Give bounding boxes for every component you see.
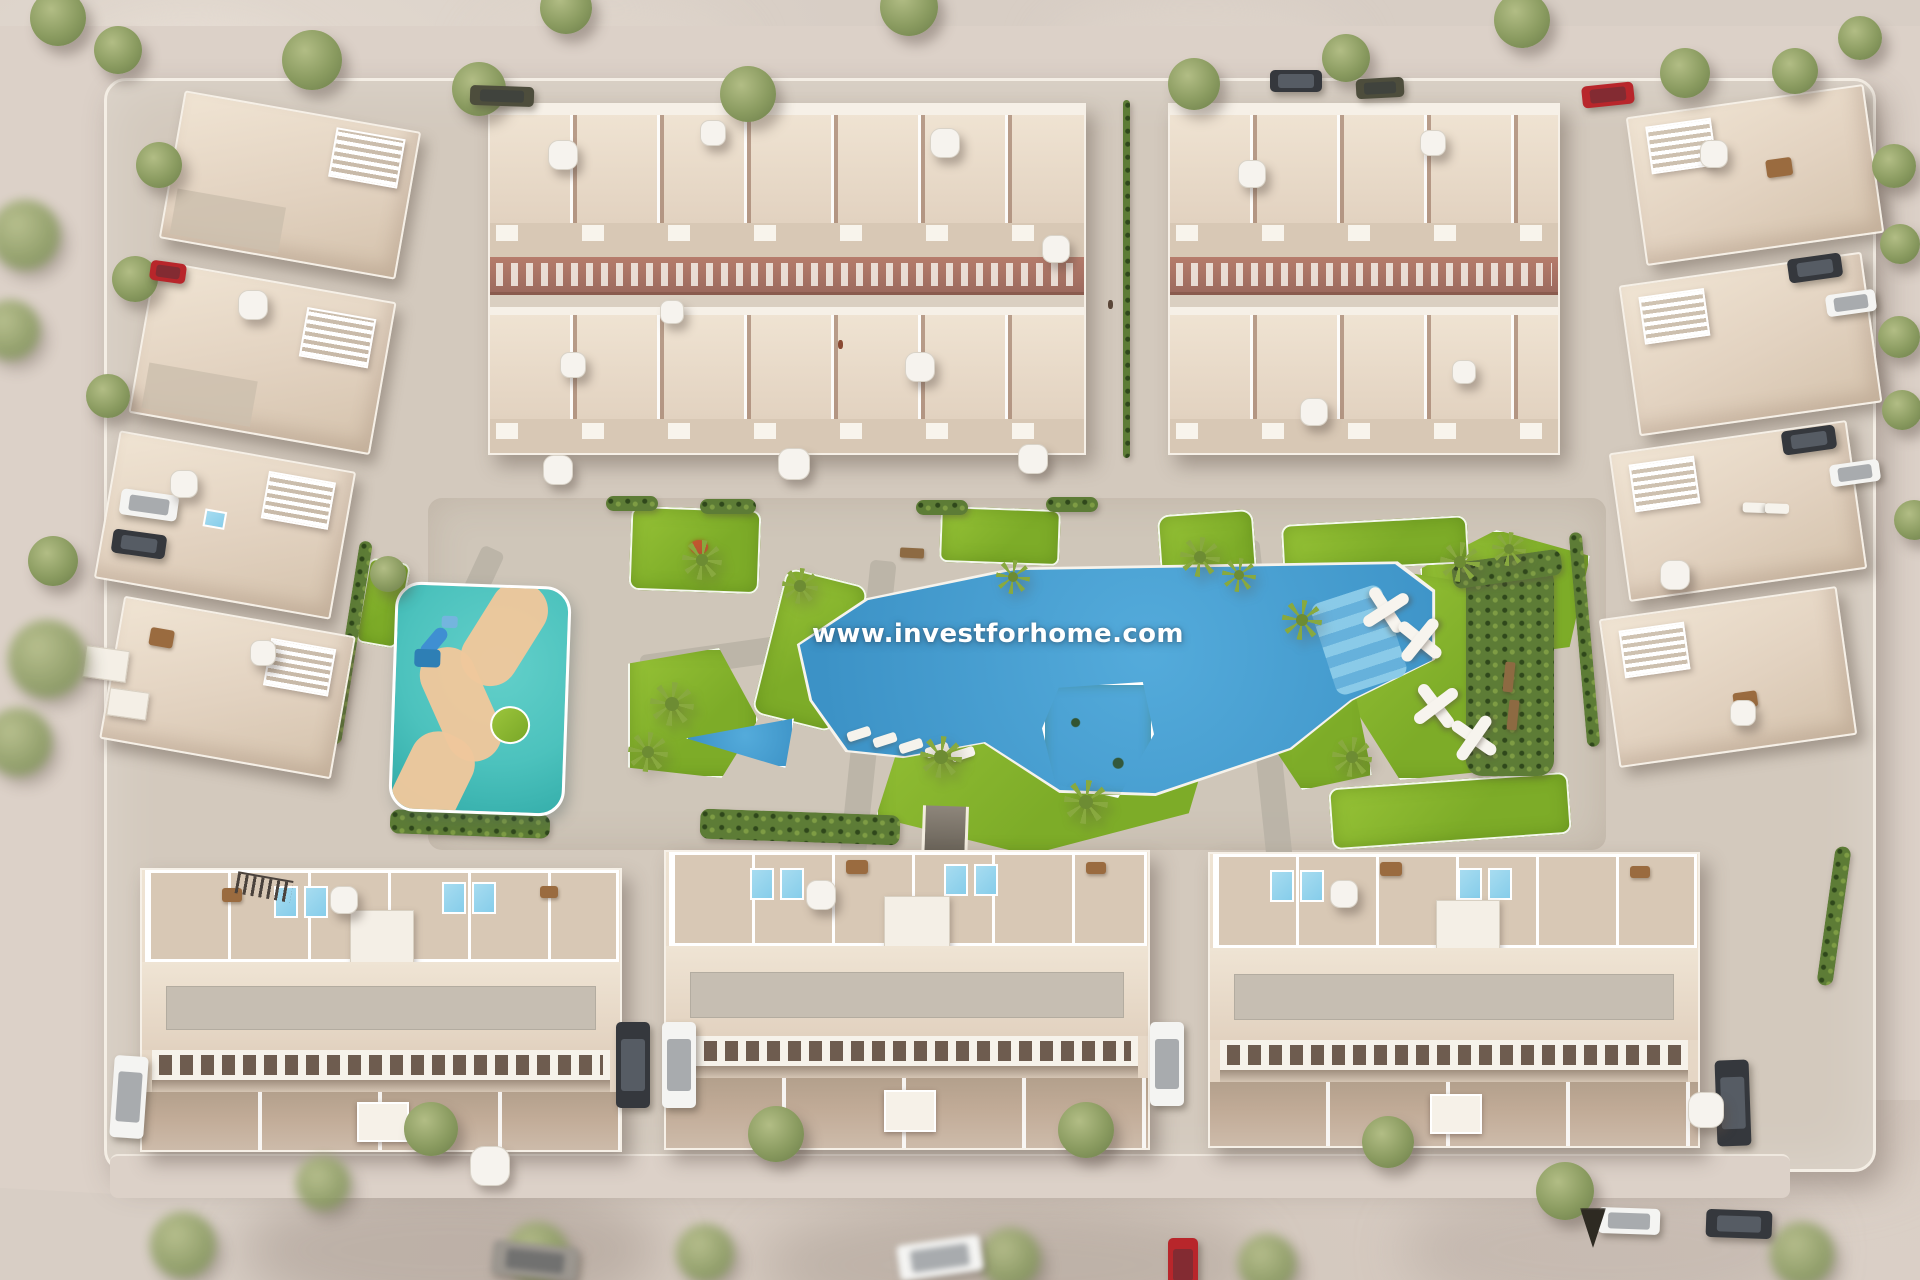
palm-tree xyxy=(1222,558,1256,592)
plaza-bench xyxy=(900,547,924,558)
tree xyxy=(1772,48,1818,94)
terrace-furniture xyxy=(148,627,175,649)
parasol xyxy=(1700,140,1728,168)
pergola-louver-roof xyxy=(328,127,406,188)
tree xyxy=(404,1102,458,1156)
facade-shadow xyxy=(676,1066,1138,1078)
tree xyxy=(1878,316,1920,358)
tree xyxy=(980,1228,1040,1280)
parasol xyxy=(1300,398,1328,426)
tree xyxy=(1882,390,1920,430)
parasol xyxy=(170,470,198,498)
tree xyxy=(150,1212,216,1278)
facade-windows xyxy=(496,263,1078,286)
parasol xyxy=(548,140,578,170)
terrace-furniture xyxy=(1086,862,1106,874)
planter-hedge xyxy=(1046,497,1098,512)
stair-bulkheads xyxy=(496,423,1078,439)
street-facade xyxy=(490,257,1084,295)
garden-pergola xyxy=(106,687,150,720)
terrace-furniture xyxy=(1765,157,1793,178)
parasol xyxy=(905,352,935,382)
tree xyxy=(282,30,342,90)
park-x-bench xyxy=(1389,611,1450,669)
stair-bulkheads xyxy=(1176,423,1552,439)
tree xyxy=(1838,16,1882,60)
tree xyxy=(1880,224,1920,264)
parapet-wall xyxy=(490,307,1084,315)
window-band xyxy=(1220,1040,1688,1070)
terrace-furniture xyxy=(1380,862,1402,876)
rooftop-plunge-pool xyxy=(1458,868,1482,900)
parasol xyxy=(700,120,726,146)
alley-hedge xyxy=(1123,100,1130,458)
tree xyxy=(86,374,130,418)
garden-pergola xyxy=(82,645,130,683)
palm-tree xyxy=(628,732,668,772)
playground-structure xyxy=(441,616,457,629)
tree xyxy=(8,620,86,698)
townhouse-roof-row xyxy=(1170,115,1558,223)
facade-shadow xyxy=(152,1080,610,1092)
parked-car-olive xyxy=(470,85,535,107)
tree xyxy=(676,1224,734,1280)
terrace-furniture xyxy=(1630,866,1650,878)
roof-inner-band xyxy=(690,972,1124,1018)
facade-windows xyxy=(1176,263,1552,286)
terraced-building-south-west xyxy=(140,868,622,1152)
tree xyxy=(94,26,142,74)
palm-tree xyxy=(1332,737,1372,777)
parked-car-dark xyxy=(1270,70,1322,92)
rooftop-plunge-pool xyxy=(1300,870,1324,902)
townhouse-roof-row xyxy=(490,115,1084,223)
parasol xyxy=(806,880,836,910)
tree xyxy=(1362,1116,1414,1168)
windows xyxy=(159,1055,603,1075)
playground-structure xyxy=(414,649,441,668)
entrance-gate xyxy=(884,1090,936,1132)
walkway xyxy=(1170,295,1558,307)
parapet-wall xyxy=(1170,105,1558,115)
tree xyxy=(296,1156,350,1210)
kids-splash-pool xyxy=(388,581,572,817)
walkway xyxy=(490,295,1084,307)
rooftop-plunge-pool xyxy=(1488,868,1512,900)
parasol xyxy=(543,455,573,485)
parked-car-red xyxy=(1168,1238,1198,1280)
person xyxy=(838,340,843,349)
tree xyxy=(748,1106,804,1162)
pergola-louver-roof xyxy=(299,307,377,368)
parasol xyxy=(1688,1092,1724,1128)
parapet-wall xyxy=(490,105,1084,115)
palm-tree xyxy=(1064,780,1108,824)
parked-car-white xyxy=(1598,1207,1661,1235)
parked-car-dark xyxy=(616,1022,650,1108)
entrance-gate xyxy=(357,1102,409,1142)
parasol xyxy=(1452,360,1476,384)
roof-inner-band xyxy=(1234,974,1674,1020)
rooftop-plunge-pool xyxy=(304,886,328,918)
parasol xyxy=(1018,444,1048,474)
parked-car-white xyxy=(1150,1022,1184,1106)
windows xyxy=(683,1041,1131,1061)
sun-lounger xyxy=(1765,503,1789,514)
tree xyxy=(1058,1102,1114,1158)
palm-tree xyxy=(1440,542,1480,582)
tree xyxy=(1168,58,1220,110)
parasol xyxy=(1730,700,1756,726)
palm-tree xyxy=(996,560,1030,594)
rooftop-plunge-pool xyxy=(944,864,968,896)
window-band xyxy=(676,1036,1138,1066)
parked-car-dark xyxy=(1706,1209,1773,1239)
townhouse-roof-row xyxy=(1170,315,1558,419)
facade-shadow xyxy=(1220,1070,1688,1082)
pergola-louver-roof xyxy=(1629,456,1701,513)
entrance-gate xyxy=(1430,1094,1482,1134)
palm-tree xyxy=(920,736,962,778)
windows xyxy=(1227,1045,1681,1065)
tree xyxy=(370,556,406,592)
planter-hedge xyxy=(700,499,756,514)
splash-island xyxy=(489,705,530,744)
parasol xyxy=(470,1146,510,1186)
tree xyxy=(1660,48,1710,98)
parasol xyxy=(1420,130,1446,156)
parasol xyxy=(250,640,276,666)
parasol xyxy=(1330,880,1358,908)
rooftop-plunge-pool xyxy=(442,882,466,914)
palm-tree xyxy=(650,682,694,726)
villa-terrace xyxy=(141,362,257,426)
palm-tree xyxy=(782,568,818,604)
palm-tree xyxy=(1180,537,1220,577)
rooftop-plunge-pool xyxy=(1270,870,1294,902)
townhouse-block-north-east xyxy=(1168,103,1560,455)
tree xyxy=(720,66,776,122)
palm-tree xyxy=(1492,532,1526,566)
terrace-furniture xyxy=(846,860,868,874)
palm-tree xyxy=(682,540,722,580)
rooftop-skylight xyxy=(202,508,227,530)
tree xyxy=(1770,1222,1834,1280)
aerial-development-render: www.investforhome.com xyxy=(0,0,1920,1280)
terrace-furniture xyxy=(540,886,558,898)
street-facade xyxy=(1170,257,1558,295)
parked-car-white xyxy=(662,1022,696,1108)
parasol xyxy=(660,300,684,324)
planter-hedge xyxy=(606,496,658,511)
rooftop-plunge-pool xyxy=(974,864,998,896)
parasol xyxy=(330,886,358,914)
parasol xyxy=(1660,560,1690,590)
tree xyxy=(136,142,182,188)
watermark: www.investforhome.com xyxy=(812,620,1107,650)
rooftop-plunge-pool xyxy=(780,868,804,900)
park-x-bench xyxy=(1442,708,1506,769)
roof-inner-band xyxy=(166,986,596,1030)
parasol xyxy=(238,290,268,320)
pergola-louver-roof xyxy=(1638,288,1710,345)
sun-lounger xyxy=(1743,502,1767,513)
parked-car-olive xyxy=(1356,77,1405,99)
pergola-louver-roof xyxy=(1619,622,1691,679)
planter-hedge xyxy=(916,500,968,515)
tree xyxy=(28,536,78,586)
stair-bulkhead xyxy=(350,910,414,968)
parasol xyxy=(1042,235,1070,263)
tree xyxy=(1872,144,1916,188)
tree xyxy=(1238,1234,1296,1280)
terraced-building-south-east xyxy=(1208,852,1700,1148)
rooftop-plunge-pool xyxy=(750,868,774,900)
pergola-louver-roof xyxy=(261,471,336,530)
stair-bulkheads xyxy=(1176,225,1552,241)
person xyxy=(1108,300,1113,309)
rooftop-plunge-pool xyxy=(472,882,496,914)
parasol xyxy=(778,448,810,480)
window-band xyxy=(152,1050,610,1080)
palm-tree xyxy=(1282,600,1322,640)
tree xyxy=(1322,34,1370,82)
parasol xyxy=(560,352,586,378)
parasol xyxy=(1238,160,1266,188)
parked-car-white xyxy=(109,1055,149,1139)
parasol xyxy=(930,128,960,158)
stair-bulkheads xyxy=(496,225,1078,241)
parapet-wall xyxy=(1170,307,1558,315)
